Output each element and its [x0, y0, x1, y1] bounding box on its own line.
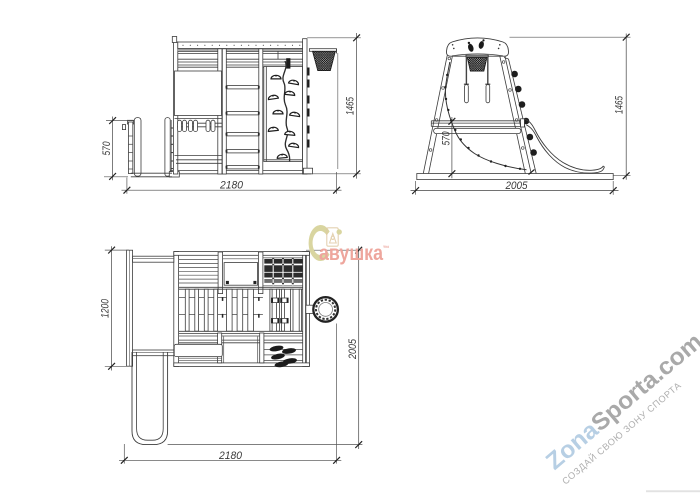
- svg-text:1200: 1200: [100, 298, 112, 318]
- svg-text:™: ™: [383, 246, 390, 253]
- svg-text:2180: 2180: [218, 450, 243, 462]
- svg-text:2180: 2180: [219, 179, 244, 191]
- svg-text:авушка: авушка: [319, 241, 384, 265]
- svg-text:570: 570: [441, 131, 453, 146]
- svg-text:570: 570: [101, 141, 113, 156]
- svg-text:1465: 1465: [614, 95, 626, 114]
- svg-text:1465: 1465: [345, 96, 357, 115]
- svg-text:2005: 2005: [347, 338, 359, 360]
- svg-text:2005: 2005: [505, 180, 529, 192]
